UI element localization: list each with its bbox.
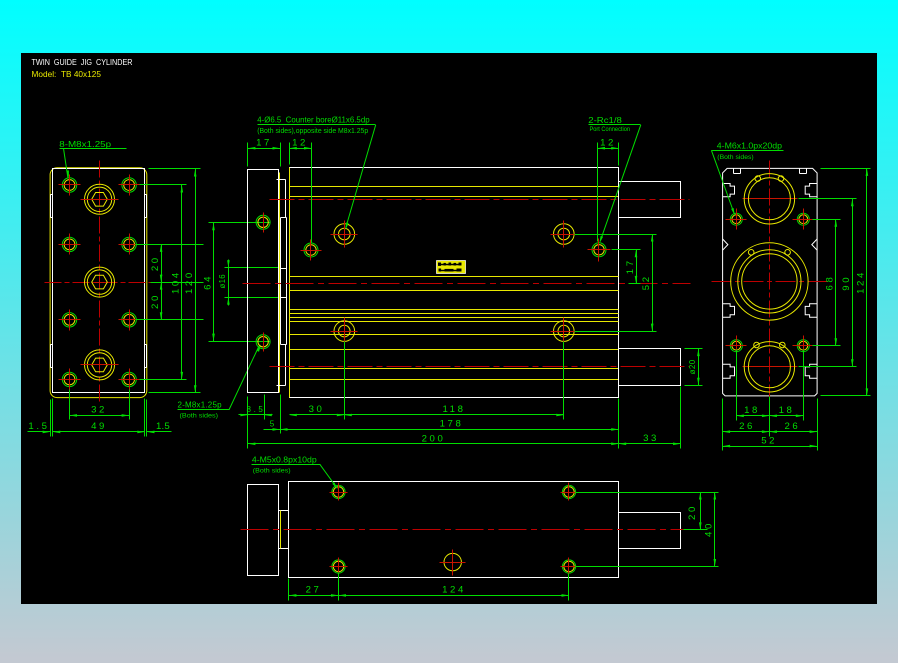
svg-text:4-M6x1.0px20dp: 4-M6x1.0px20dp (717, 142, 783, 151)
svg-text:90: 90 (841, 275, 852, 291)
svg-text:(Both sides): (Both sides) (717, 154, 753, 161)
svg-text:124: 124 (442, 584, 466, 595)
svg-text:120: 120 (184, 270, 195, 294)
svg-text:ø20: ø20 (688, 359, 697, 374)
svg-text:12: 12 (600, 138, 616, 149)
svg-text:20: 20 (150, 255, 161, 271)
svg-text:ø16: ø16 (218, 274, 227, 288)
svg-text:1.5: 1.5 (28, 421, 49, 432)
svg-text:27: 27 (306, 584, 322, 595)
svg-text:40: 40 (704, 521, 715, 537)
svg-text:20: 20 (687, 504, 698, 520)
svg-text:124: 124 (856, 270, 867, 294)
svg-text:17: 17 (256, 138, 272, 149)
svg-text:1.5: 1.5 (156, 421, 170, 432)
svg-text:Model: TB 40x125: Model: TB 40x125 (32, 70, 102, 79)
svg-text:8.5: 8.5 (247, 405, 266, 414)
svg-text:26: 26 (739, 421, 755, 432)
svg-text:49: 49 (91, 421, 107, 432)
svg-text:30: 30 (309, 404, 325, 415)
svg-text:17: 17 (625, 258, 636, 274)
svg-text:68: 68 (825, 275, 836, 291)
svg-text:64: 64 (202, 274, 213, 290)
svg-text:52: 52 (641, 274, 652, 290)
svg-text:2-M8x1.25p: 2-M8x1.25p (178, 401, 223, 410)
svg-text:18: 18 (779, 405, 795, 416)
svg-text:(Both sides),opposite side M8x: (Both sides),opposite side M8x1.25p (257, 128, 368, 135)
svg-text:18: 18 (744, 405, 760, 416)
svg-text:52: 52 (761, 435, 777, 446)
svg-text:32: 32 (91, 405, 107, 416)
svg-text:5: 5 (270, 420, 277, 429)
svg-text:178: 178 (440, 419, 464, 430)
svg-text:20: 20 (150, 293, 161, 309)
svg-text:118: 118 (442, 404, 465, 415)
svg-text:8-M8x1.25p: 8-M8x1.25p (59, 140, 111, 149)
svg-text:33: 33 (643, 433, 659, 444)
svg-text:12: 12 (292, 138, 308, 149)
svg-text:(Both sides): (Both sides) (180, 412, 219, 419)
svg-text:4-M5x0.8px10dp: 4-M5x0.8px10dp (252, 456, 317, 465)
svg-text:Port Connection: Port Connection (590, 126, 631, 133)
svg-text:104: 104 (171, 270, 182, 294)
svg-text:26: 26 (784, 421, 800, 432)
svg-text:200: 200 (422, 433, 446, 444)
svg-text:4-Ø6.5 Counter boreØ11x6.5dp: 4-Ø6.5 Counter boreØ11x6.5dp (257, 116, 370, 125)
svg-text:2-Rc1/8: 2-Rc1/8 (588, 115, 622, 125)
svg-text:TWIN GUIDE JIG CYLINDER: TWIN GUIDE JIG CYLINDER (32, 58, 133, 67)
svg-text:(Both sides): (Both sides) (253, 467, 291, 474)
